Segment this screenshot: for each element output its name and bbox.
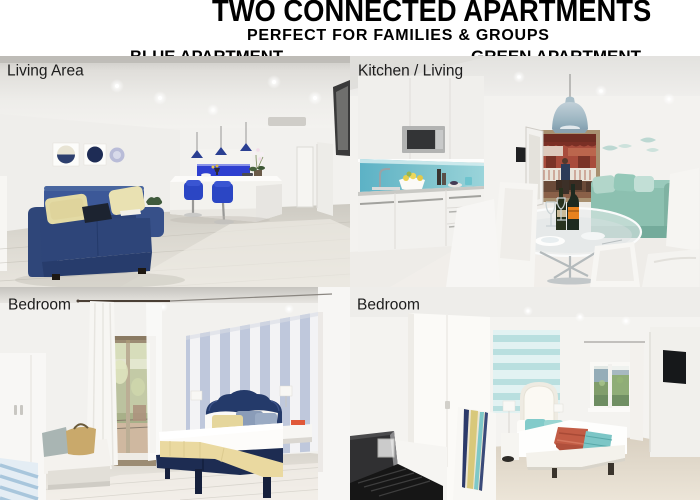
svg-text:Bedroom: Bedroom bbox=[8, 297, 71, 314]
svg-text:Living Area: Living Area bbox=[7, 63, 84, 80]
svg-text:Bedroom: Bedroom bbox=[357, 297, 420, 314]
svg-text:Kitchen / Living: Kitchen / Living bbox=[358, 63, 463, 80]
